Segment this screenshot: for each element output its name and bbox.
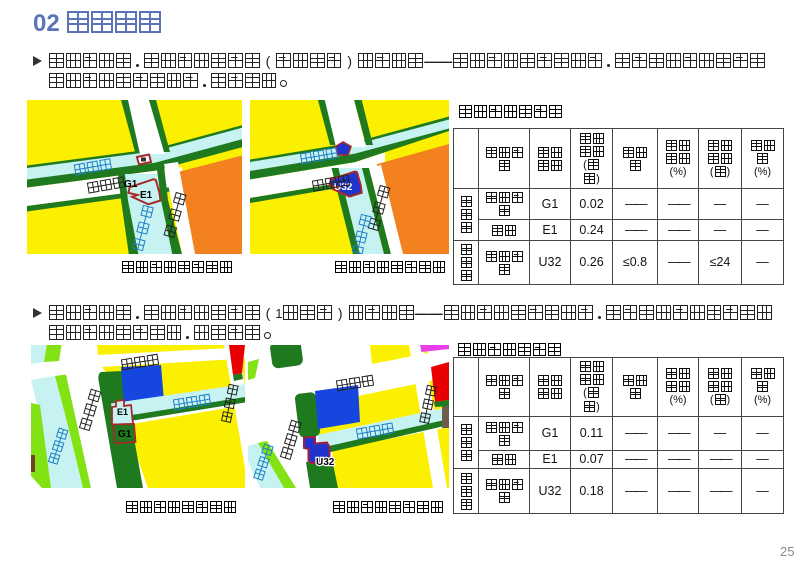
svg-text:U32: U32	[316, 457, 335, 468]
svg-text:G1: G1	[118, 429, 132, 440]
svg-text:G1: G1	[124, 179, 138, 190]
svg-text:E1: E1	[117, 407, 128, 417]
svg-text:E1: E1	[140, 190, 153, 201]
